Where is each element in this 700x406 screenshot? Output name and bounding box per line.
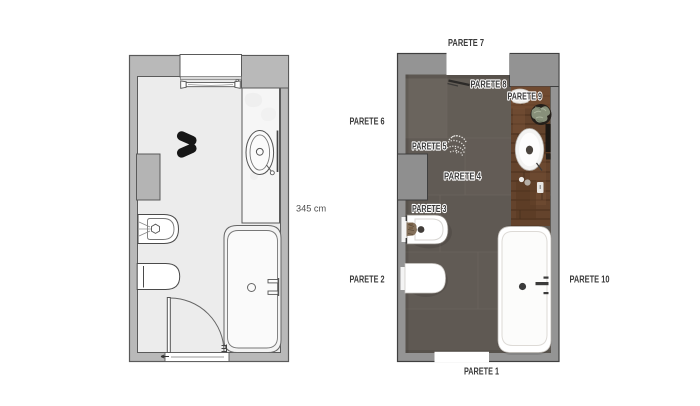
svg-text:PARETE 6: PARETE 6 — [350, 117, 385, 128]
svg-text:PARETE 2: PARETE 2 — [350, 275, 385, 286]
svg-text:PARETE 1: PARETE 1 — [464, 367, 499, 378]
svg-text:PARETE 9: PARETE 9 — [508, 92, 543, 103]
svg-text:PARETE 10: PARETE 10 — [570, 275, 610, 286]
svg-text:PARETE 5: PARETE 5 — [412, 142, 447, 153]
svg-text:PARETE 8: PARETE 8 — [471, 80, 507, 91]
svg-text:345 cm: 345 cm — [296, 204, 326, 214]
svg-text:PARETE 4: PARETE 4 — [444, 172, 481, 183]
svg-text:PARETE 3: PARETE 3 — [412, 204, 447, 215]
svg-text:PARETE 7: PARETE 7 — [448, 38, 484, 49]
